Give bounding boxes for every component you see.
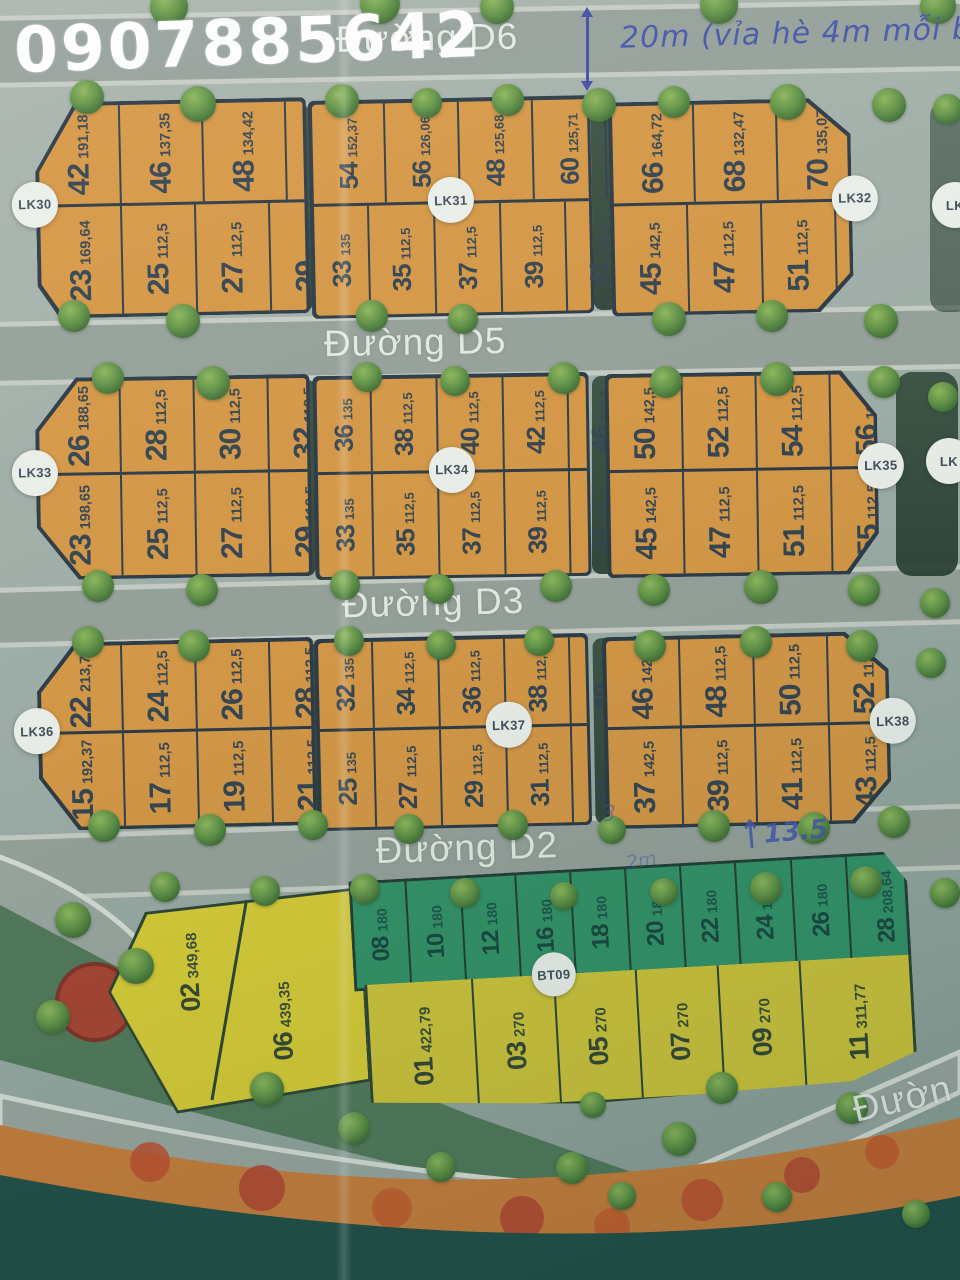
tree-icon: [652, 302, 686, 336]
plot-area: 112,5: [467, 650, 483, 682]
plot-label: 41112,5: [775, 738, 811, 811]
plot-number: 38: [522, 686, 554, 714]
plot-number: 34: [391, 689, 423, 717]
plot-number: 24: [142, 691, 177, 723]
plot-label: 25112,5: [141, 488, 176, 560]
plot-number: 10: [422, 933, 451, 959]
tree-icon: [55, 902, 91, 938]
plot-area: 125,71: [565, 113, 581, 153]
plot-area: 270: [510, 1011, 528, 1037]
block-BT09: 02349,68 06439,35 0818010180121801618018…: [99, 849, 952, 1144]
tree-icon: [250, 1072, 284, 1106]
plot-number: 06: [268, 1032, 301, 1062]
up-arrow-icon: ↑: [738, 813, 764, 860]
tree-icon: [706, 1072, 738, 1104]
plot-label: 22213,71: [63, 647, 99, 728]
plot-number: 51: [778, 525, 812, 557]
block-label: LK: [940, 454, 958, 469]
plot-cell: 39112,5: [503, 471, 570, 573]
plot-area: 180: [483, 902, 500, 926]
plot-number: 20: [642, 921, 671, 947]
plot-number: 28: [140, 430, 174, 462]
plot-number: 45: [634, 263, 669, 295]
plot-number: 47: [704, 526, 738, 558]
plot-number: 01: [408, 1056, 441, 1086]
plot-cell: 47112,5: [682, 471, 757, 574]
plot-area: 112,5: [789, 738, 806, 774]
plot-label: 42191,18: [61, 114, 97, 195]
plot-number: 24: [752, 914, 781, 940]
dimension-arrow-icon: [586, 10, 589, 88]
plot-row: 23198,6525112,527112,529112,531135: [39, 472, 309, 577]
plot-area: 270: [592, 1006, 610, 1032]
plot-number: 39: [518, 261, 550, 289]
tree-icon: [350, 874, 380, 904]
plot-label: 37112,5: [455, 491, 487, 555]
block-fill: 50142,552112,554112,556112,558179,914514…: [608, 373, 876, 574]
handwritten-scribble: 3: [602, 802, 616, 827]
block-outline: 66164,7268132,4770135,0772138,0974184,61…: [608, 97, 854, 316]
plot-number: 43: [850, 776, 885, 808]
plot-row: 66164,7268132,4770135,0772138,0974184,61: [611, 101, 848, 206]
plot-label: 54112,5: [776, 385, 811, 457]
plot-label: 11311,77: [840, 982, 875, 1060]
plot-area: 180: [703, 889, 720, 913]
tree-icon: [82, 570, 114, 602]
block-outline: 22213,7124112,526112,528112,53013515192,…: [36, 637, 317, 831]
tree-icon: [864, 304, 898, 338]
plot-cell: 66164,72: [611, 104, 694, 203]
plot-cell: 38112,5: [370, 378, 437, 472]
plot-cell: 23169,64: [39, 206, 122, 315]
plot-area: 112,5: [535, 743, 551, 775]
plot-row: 26188,6528112,530112,532112,534135: [38, 377, 307, 476]
plot-area: 112,5: [863, 736, 880, 772]
plot-cell: 52112,5: [681, 375, 756, 469]
plot-area: 125,68: [491, 114, 507, 154]
plot-row: 23169,6425112,527112,529112,531135: [39, 202, 306, 315]
plot-cell: 27112,5: [194, 203, 270, 312]
plot-number: 28: [872, 918, 901, 944]
plot-cell: 06439,35: [214, 940, 351, 1102]
tree-icon: [930, 878, 960, 908]
block-outline: 50142,552112,554112,556112,558179,914514…: [604, 370, 879, 578]
plot-cell: 45142,5: [613, 205, 688, 313]
tree-icon: [166, 304, 200, 338]
plot-area: 112,5: [795, 220, 812, 256]
plot-number: 02: [175, 983, 208, 1013]
plot-label: 27112,5: [215, 487, 250, 559]
tree-icon: [556, 1152, 588, 1184]
plot-area: 198,65: [77, 485, 94, 530]
tree-icon: [634, 630, 666, 662]
plot-cell: 01422,79: [367, 979, 478, 1113]
tree-icon: [872, 88, 906, 122]
plot-area: 112,5: [402, 652, 418, 684]
tree-icon: [180, 86, 216, 122]
tree-icon: [196, 366, 230, 400]
plot-label: 50142,5: [627, 387, 662, 460]
plot-label: 30112,5: [214, 388, 249, 460]
block-label: LK34: [435, 462, 469, 478]
plot-cell: 47112,5: [686, 203, 762, 311]
plot-area: 112,5: [715, 739, 732, 775]
tree-icon: [744, 570, 778, 604]
plot-label: 01422,79: [405, 1006, 440, 1087]
plot-label: 24112,5: [141, 650, 177, 723]
plot-area: 439,35: [276, 981, 296, 1028]
plot-label: 15192,37: [65, 739, 101, 820]
plot-cell: 51112,5: [756, 470, 831, 573]
plot-area: 180: [428, 905, 445, 929]
plot-label: 68132,47: [718, 111, 754, 192]
plot-cell: 39112,5: [499, 201, 567, 311]
tree-icon: [608, 1182, 636, 1210]
plot-label: 48112,5: [699, 645, 735, 718]
plot-label: 42112,5: [520, 390, 552, 454]
block-label: LK35: [864, 458, 898, 474]
plot-cell: 25112,5: [120, 204, 196, 313]
tree-icon: [36, 1000, 70, 1034]
plot-number: 41: [776, 778, 811, 810]
plot-area: 180: [373, 908, 390, 932]
plot-area: 112,5: [402, 492, 417, 524]
tree-icon: [178, 630, 210, 662]
tree-icon: [762, 1182, 792, 1212]
block-outline: 42191,1846137,3548134,4250131,9252155,62…: [34, 97, 310, 319]
plot-number: 68: [719, 161, 754, 193]
tree-icon: [356, 300, 388, 332]
tree-icon: [424, 574, 454, 604]
plot-cell: 26180: [789, 857, 850, 964]
block-label: BT09: [537, 966, 571, 983]
plot-number: 42: [520, 427, 551, 454]
plot-label: 45142,5: [629, 487, 664, 560]
plot-label: 66164,72: [635, 113, 671, 194]
block-label: LK31: [434, 193, 468, 209]
tree-icon: [928, 382, 958, 412]
plot-number: 22: [697, 918, 726, 944]
block-outline: 26188,6528112,530112,532112,53413523198,…: [34, 374, 312, 580]
block-label: LK: [946, 198, 960, 213]
plot-cell: 18180: [569, 869, 630, 976]
block-fill: 46142,548112,550112,552112,554206,363714…: [605, 634, 888, 825]
block-label: LK37: [492, 717, 526, 733]
plot-label: 39112,5: [517, 224, 549, 288]
plot-row: 42191,1846137,3548134,4250131,9252155,6: [37, 101, 304, 208]
plot-label: 31112,5: [523, 743, 555, 807]
plot-number: 37: [456, 528, 487, 555]
block-LK33: 26188,6528112,530112,532112,53413523198,…: [34, 374, 312, 580]
tree-icon: [756, 300, 788, 332]
plot-number: 42: [62, 163, 97, 195]
plot-cell: 48134,42: [201, 101, 286, 201]
tree-icon: [426, 1152, 456, 1182]
plot-area: 112,5: [155, 650, 172, 686]
plot-area: 422,79: [416, 1006, 436, 1053]
tree-icon: [58, 300, 90, 332]
plot-area: 112,5: [790, 385, 807, 421]
plot-area: 164,72: [649, 113, 666, 158]
block-LK32: 66164,7268132,4770135,0772138,0974184,61…: [608, 97, 854, 316]
plot-number: 66: [636, 162, 671, 194]
plot-number: 45: [630, 528, 664, 560]
plot-label: 36112,5: [455, 650, 487, 714]
plot-label: 37142,5: [627, 741, 663, 814]
plot-number: 26: [807, 911, 836, 937]
tree-icon: [92, 362, 124, 394]
plot-number: 27: [216, 262, 251, 294]
handwriting-text: 13.5: [763, 814, 830, 849]
tree-icon: [770, 84, 806, 120]
tree-icon: [662, 1122, 696, 1156]
tree-icon: [650, 366, 682, 398]
plot-number: 29: [458, 781, 490, 809]
plot-label: 37112,5: [452, 226, 484, 290]
plot-label: 17112,5: [143, 742, 179, 815]
plot-area: 112,5: [404, 746, 420, 778]
plot-label: 27112,5: [215, 221, 250, 294]
plot-number: 22: [64, 697, 99, 729]
block-LK35: 50142,552112,554112,556112,558179,914514…: [604, 370, 879, 578]
plot-area: 137,35: [158, 112, 175, 157]
plot-label: 28112,5: [140, 389, 175, 461]
plot-area: 112,5: [721, 221, 738, 257]
plot-row: 50142,552112,554112,556112,558179,91: [608, 373, 874, 473]
plot-number: 60: [554, 157, 586, 185]
plot-area: 112,5: [466, 391, 481, 423]
tree-icon: [450, 878, 480, 908]
plot-cell: 19112,5: [196, 729, 272, 824]
tree-icon: [72, 626, 104, 658]
plot-number: 47: [708, 261, 743, 293]
plot-area: 112,5: [157, 742, 174, 778]
tree-icon: [698, 810, 730, 842]
tree-icon: [498, 810, 528, 840]
plot-area: 142,5: [643, 487, 660, 524]
tree-icon: [550, 882, 578, 910]
plot-label: 12180: [475, 902, 506, 957]
plot-number: 03: [501, 1041, 534, 1071]
tree-icon: [298, 810, 328, 840]
tree-icon: [740, 626, 772, 658]
tree-icon: [658, 86, 690, 118]
plot-number: 54: [776, 425, 810, 457]
plot-label: 38112,5: [388, 392, 420, 456]
plot-area: 112,5: [398, 227, 414, 259]
plot-area: 126,06: [418, 116, 434, 156]
plot-number: 18: [587, 924, 616, 950]
plot-area: 311,77: [851, 983, 870, 1029]
tree-icon: [548, 362, 580, 394]
plot-area: 112,5: [717, 486, 734, 522]
tree-icon: [394, 814, 424, 844]
block-fill: 22213,7124112,526112,528112,53013515192,…: [39, 640, 313, 827]
tree-icon: [902, 1200, 930, 1228]
block-label: LK30: [18, 197, 52, 213]
tree-icon: [760, 362, 794, 396]
plot-number: 51: [782, 260, 817, 292]
plot-area: 112,5: [229, 221, 246, 257]
plot-area: 349,68: [183, 932, 203, 979]
wedge-plots: 02349,68 06439,35: [103, 887, 373, 1117]
plot-number: 70: [801, 159, 836, 191]
tree-icon: [150, 872, 180, 902]
plot-number: 09: [747, 1027, 780, 1057]
block-label: LK36: [20, 724, 54, 740]
tree-icon: [916, 648, 946, 678]
plot-label: 52112,5: [702, 386, 737, 458]
plot-label: 10180: [420, 905, 451, 960]
plot-area: 112,5: [532, 390, 547, 422]
plot-label: 45142,5: [633, 222, 669, 295]
plot-label: 05270: [581, 1006, 615, 1066]
plot-number: 37: [452, 262, 484, 290]
plot-label: 23198,65: [63, 485, 98, 566]
plot-number: 23: [64, 535, 98, 567]
plot-area: 112,5: [229, 487, 246, 523]
tree-icon: [540, 570, 572, 602]
plot-label: 07270: [663, 1002, 697, 1062]
plot-label: 46137,35: [144, 112, 180, 193]
plot-number: 37: [628, 782, 663, 814]
plot-row: 45142,547112,551112,555112,557189,03: [609, 469, 876, 575]
plot-area: 112,5: [470, 744, 486, 776]
tree-icon: [412, 88, 442, 118]
plot-label: 03270: [499, 1011, 533, 1071]
tree-icon: [118, 948, 154, 984]
block-LK37: 3213534112,536112,538112,540112,54213525…: [314, 633, 592, 831]
plot-label: 25112,5: [141, 223, 176, 296]
plot-number: 50: [628, 428, 662, 460]
tree-icon: [70, 80, 104, 114]
plot-number: 12: [477, 930, 506, 956]
plot-area: 112,5: [533, 490, 548, 522]
plot-cell: 37142,5: [607, 729, 682, 826]
plot-number: 07: [665, 1032, 698, 1062]
plot-label: 35112,5: [386, 227, 418, 291]
plot-label: 51112,5: [777, 485, 812, 557]
plot-area: 142,5: [641, 741, 658, 778]
plot-label: 08180: [365, 908, 396, 963]
plot-area: 112,5: [400, 392, 415, 424]
plot-area: 132,47: [732, 111, 749, 156]
plot-number: 46: [145, 161, 180, 193]
plot-number: 27: [393, 783, 425, 811]
tree-icon: [933, 94, 960, 124]
block-label-circle: LK30: [11, 181, 58, 228]
plot-cell: 23198,65: [39, 475, 121, 577]
plot-number: 26: [62, 436, 96, 468]
tree-icon: [580, 1092, 606, 1118]
plot-label: 22180: [695, 889, 726, 944]
plot-label: 48134,42: [226, 110, 262, 191]
plot-number: 52: [702, 426, 736, 458]
plot-number: 39: [522, 527, 553, 554]
plot-number: 25: [142, 263, 177, 295]
plot-number: 05: [583, 1036, 616, 1066]
tree-icon: [440, 366, 470, 396]
plot-label: 26180: [805, 883, 836, 938]
plot-number: 23: [64, 269, 99, 301]
plot-label: 23169,64: [63, 220, 99, 301]
plot-label: 19112,5: [217, 740, 253, 813]
plot-number: 48: [227, 160, 262, 192]
plot-number: 48: [700, 686, 735, 718]
paper-crease: [336, 0, 352, 1280]
plot-number: 31: [524, 780, 556, 808]
plot-area: 270: [756, 997, 774, 1023]
plot-number: 50: [774, 684, 809, 716]
plot-number: 11: [843, 1032, 875, 1060]
plot-cell: 39112,5: [680, 727, 756, 824]
tree-icon: [750, 872, 782, 904]
plot-cell: 68132,47: [692, 103, 777, 202]
plot-row: 37142,539112,541112,543112,545215,49: [607, 724, 888, 825]
plot-area: 112,5: [713, 645, 730, 681]
plot-label: 48125,68: [479, 114, 511, 186]
block-LK36: 22213,7124112,526112,528112,53013515192,…: [36, 637, 317, 831]
plot-number: 16: [532, 927, 561, 953]
block-label: LK38: [876, 713, 910, 729]
block-label-circle: LK35: [858, 442, 905, 489]
plot-label: 34112,5: [390, 652, 422, 716]
tree-icon: [878, 806, 910, 838]
tree-icon: [846, 630, 878, 662]
plot-number: 48: [480, 159, 512, 187]
plot-cell: 11311,77: [798, 955, 915, 1089]
block-LK30: 42191,1846137,3548134,4250131,9252155,62…: [34, 97, 310, 319]
block-fill: 66164,7268132,4770135,0772138,0974184,61…: [611, 101, 850, 313]
tree-icon: [848, 574, 880, 606]
plot-area: 112,5: [464, 226, 480, 258]
plot-area: 191,18: [75, 114, 92, 159]
plot-area: 134,42: [240, 110, 257, 155]
plot-number: 35: [390, 529, 421, 556]
tree-icon: [448, 304, 478, 334]
plot-cell: 41112,5: [754, 726, 830, 823]
tree-icon: [492, 84, 524, 116]
plot-area: 112,5: [228, 388, 245, 424]
plot-number: 36: [456, 687, 488, 715]
tree-icon: [88, 810, 120, 842]
tree-icon: [250, 876, 280, 906]
plot-number: 46: [626, 688, 661, 720]
plot-cell: 28112,5: [119, 379, 194, 472]
plot-area: 270: [674, 1002, 692, 1028]
plot-label: 26188,65: [61, 386, 96, 467]
plot-area: 180: [813, 883, 830, 907]
plot-area: 112,5: [791, 485, 808, 521]
tree-icon: [186, 574, 218, 606]
plot-area: 112,5: [231, 740, 248, 776]
plot-label: 27112,5: [392, 746, 424, 810]
plot-number: 27: [216, 528, 250, 560]
plot-label: 51112,5: [781, 219, 816, 292]
plot-number: 38: [389, 429, 420, 456]
tree-icon: [868, 366, 900, 398]
plot-number: 08: [367, 936, 396, 962]
plot-cell: 35112,5: [371, 473, 438, 575]
plot-area: 112,5: [529, 224, 545, 256]
plot-label: 70135,07: [800, 110, 836, 191]
block-fill: 3213534112,536112,538112,540112,54213525…: [317, 636, 588, 827]
plot-area: 192,37: [79, 740, 96, 785]
plot-cell: 17112,5: [122, 731, 198, 826]
plot-cell: 27112,5: [373, 730, 441, 827]
plot-cell: 22180: [679, 863, 740, 970]
plot-label: 18180: [585, 895, 616, 950]
